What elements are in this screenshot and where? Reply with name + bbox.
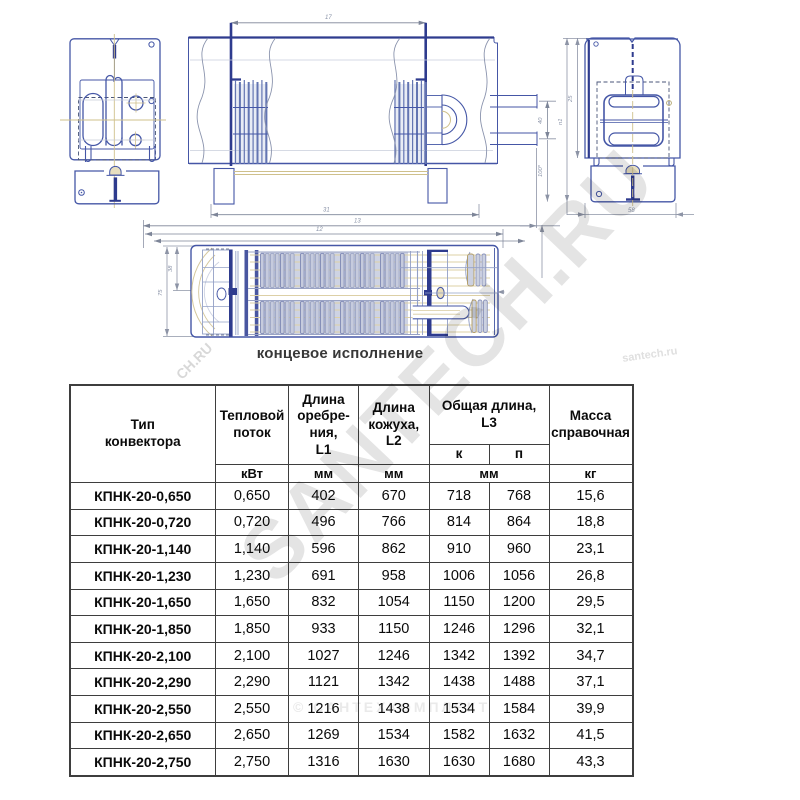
svg-text:17: 17 xyxy=(325,15,332,21)
svg-text:100*: 100* xyxy=(538,164,544,177)
svg-text:12: 12 xyxy=(316,227,323,233)
svg-text:n1: n1 xyxy=(558,119,564,125)
svg-text:31: 31 xyxy=(323,208,330,214)
svg-text:13: 13 xyxy=(354,219,361,225)
svg-text:38: 38 xyxy=(168,265,174,272)
svg-text:58: 58 xyxy=(628,208,635,214)
svg-text:75: 75 xyxy=(158,289,164,296)
svg-text:40: 40 xyxy=(538,117,544,124)
svg-text:25: 25 xyxy=(568,95,574,103)
